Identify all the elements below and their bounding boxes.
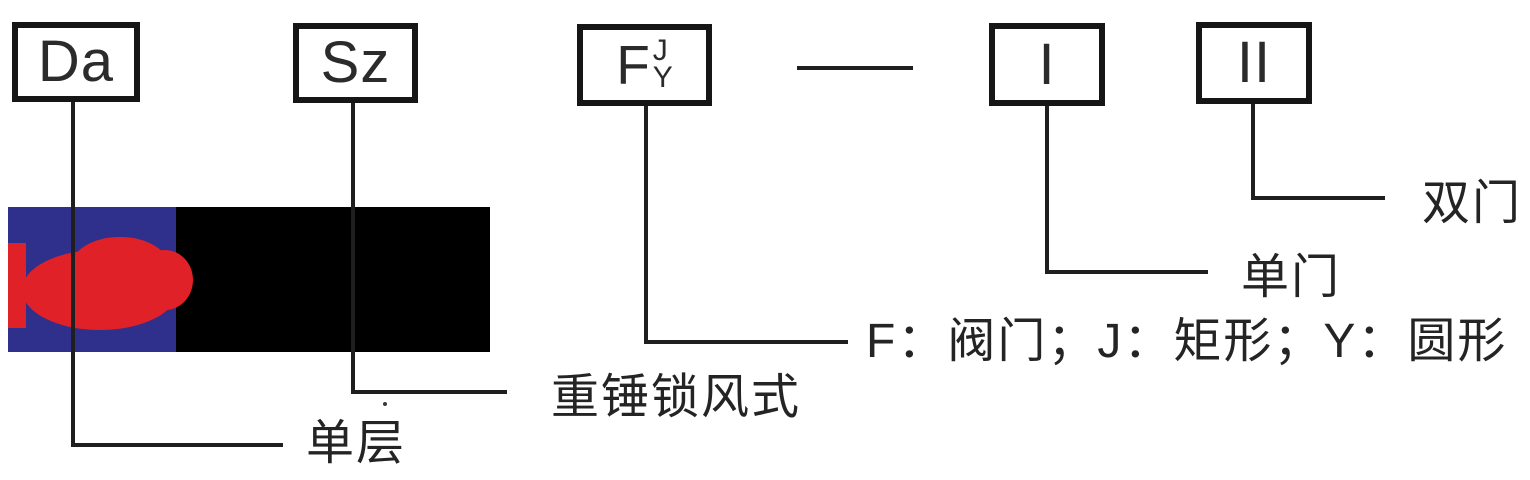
leader-fjy-line	[644, 104, 848, 344]
code-box-da: Da	[12, 22, 140, 102]
code-box-fjy: F J Y	[577, 24, 712, 106]
code-box-roman-two-label: II	[1237, 34, 1271, 92]
code-box-da-label: Da	[38, 33, 114, 91]
code-box-roman-two: II	[1196, 22, 1312, 104]
leader-da-line	[71, 100, 283, 447]
leader-sz-line	[351, 101, 507, 394]
annotation-double-door: 双门	[1422, 178, 1522, 230]
annotation-fjy-legend: F：阀门；J：矩形；Y：圆形	[866, 316, 1507, 368]
code-box-fjy-base: F	[616, 38, 650, 93]
annotation-single-door: 单门	[1241, 252, 1341, 304]
code-box-fjy-superscript: J	[653, 37, 668, 64]
separator-dash	[797, 66, 913, 70]
code-box-sz-label: Sz	[321, 34, 391, 92]
model-designation-diagram: Da Sz F J Y I II 单层 重锤锁风式 F：阀门；J：矩形；Y：圆形…	[0, 0, 1530, 480]
ink-speck	[383, 402, 387, 406]
annotation-single-layer: 单层	[306, 418, 406, 470]
code-box-fjy-subscript: Y	[653, 64, 673, 91]
leader-one-line	[1045, 104, 1208, 274]
leader-two-line	[1251, 102, 1385, 200]
code-box-roman-one-label: I	[1038, 36, 1055, 94]
code-box-sz: Sz	[293, 23, 418, 103]
annotation-airlock-type: 重锤锁风式	[551, 372, 801, 424]
code-box-fjy-supsub: J Y	[653, 37, 673, 91]
code-box-roman-one: I	[989, 23, 1105, 106]
